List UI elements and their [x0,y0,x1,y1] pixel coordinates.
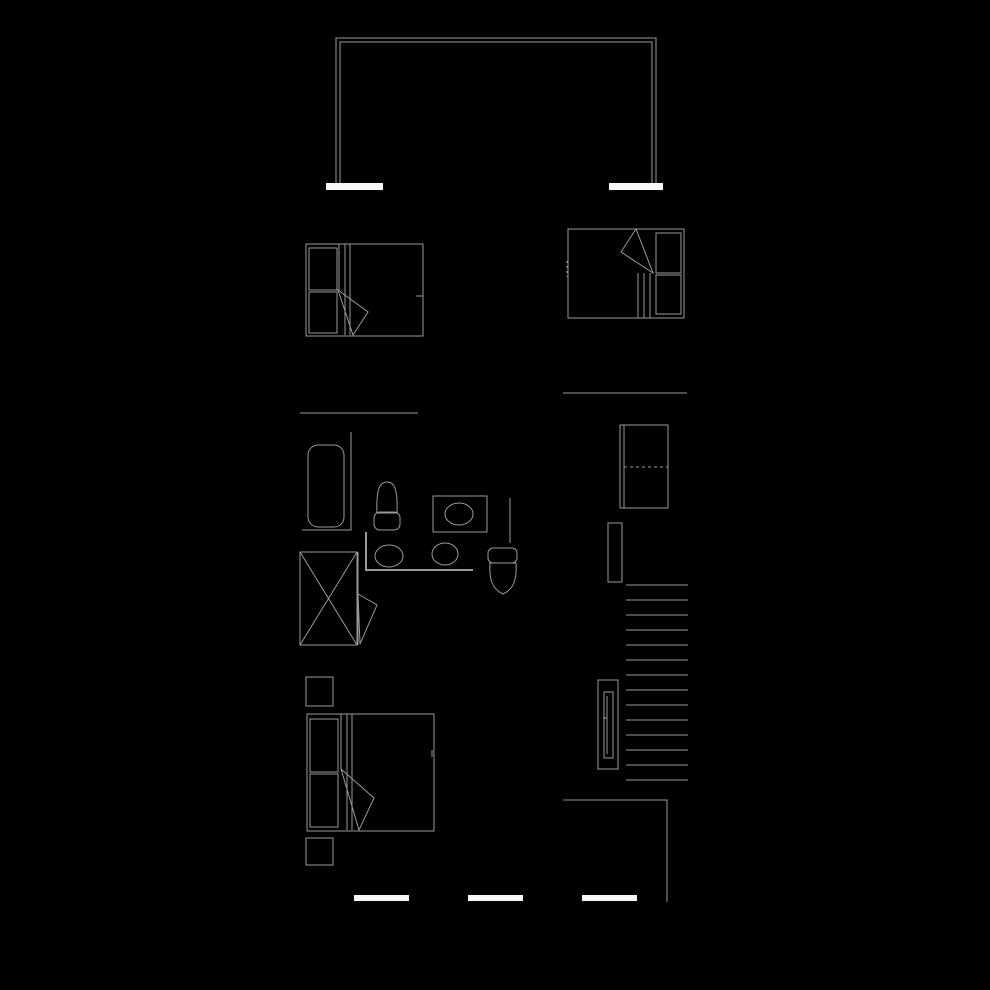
washer-body [433,496,487,532]
floor-plan [0,0,990,990]
bedroom3-nightstand-2 [306,838,333,865]
vanity-sink-1 [375,545,403,567]
bathtub [308,445,344,527]
bedroom1-pillow-1 [309,248,337,290]
bedroom1-blanket-fold [338,290,368,335]
balcony-sill-right [609,183,663,190]
balcony-rail-inner [340,42,652,183]
exterior-wall-segment-1 [354,895,409,901]
bedroom2-blanket-fold [621,229,653,273]
floor-plan-svg [0,0,990,990]
exterior-wall-segment-2 [468,895,523,901]
bedroom3-blanket-fold [341,769,374,830]
balcony-rail-outer [336,38,656,183]
vanity-counter [366,532,473,570]
stair-handrail-outer [598,680,618,769]
lower-wall [563,800,667,902]
washer-drum [445,503,473,525]
toilet-bowl [490,563,516,594]
stair-handrail-inner [604,692,613,758]
bedroom3-pillow-1 [310,719,338,772]
balcony-sill-left [326,183,383,190]
bathroom-door-leaf [358,594,377,644]
bedroom1-pillow-2 [309,292,337,333]
bedroom3-pillow-2 [310,774,338,827]
stair-wall [608,523,622,582]
exterior-wall-segment-3 [582,895,637,901]
bedroom2-pillow-2 [656,275,681,314]
bedroom3-nightstand-1 [306,677,333,706]
bedroom2-pillow-1 [656,233,681,273]
bidet-bowl [377,482,397,513]
vanity-sink-2 [432,543,458,565]
toilet-tank [488,548,517,563]
bidet-base [374,512,400,530]
